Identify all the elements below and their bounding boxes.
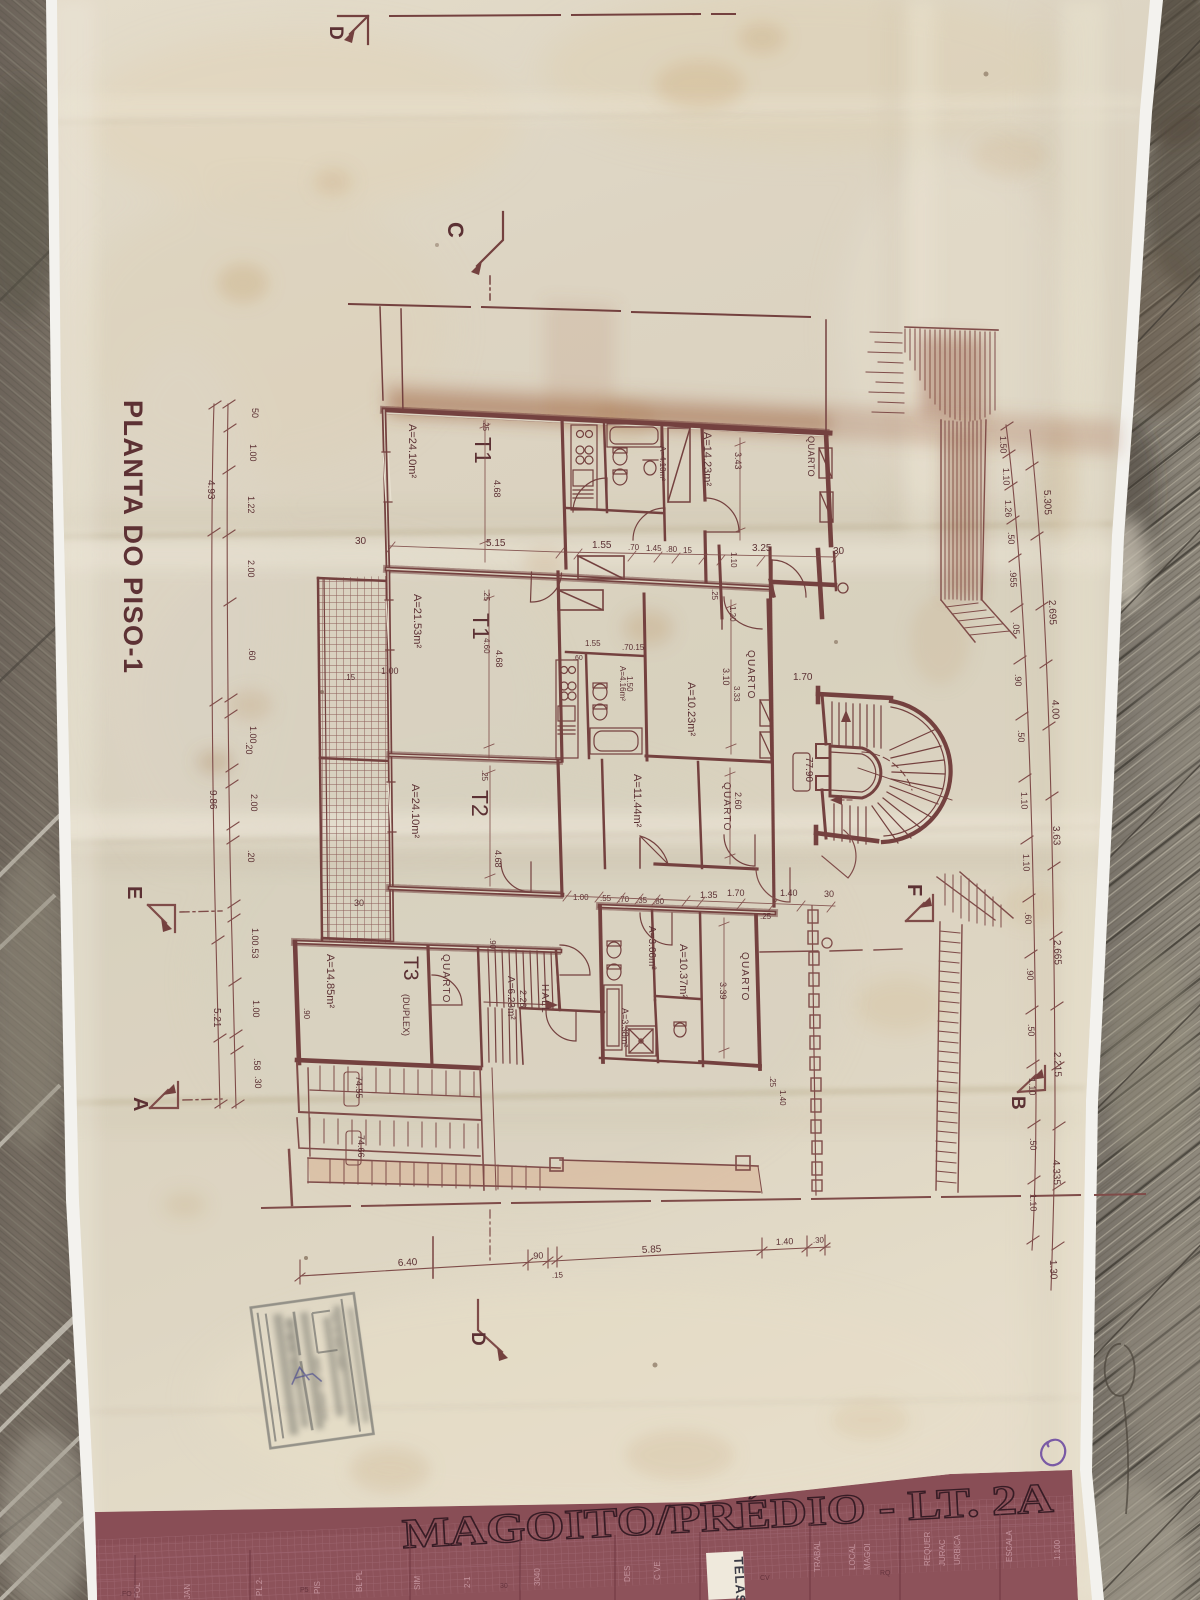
svg-text:C VE: C VE <box>653 1561 662 1580</box>
svg-text:.70.15: .70.15 <box>622 643 645 652</box>
svg-text:URBICA: URBICA <box>953 1534 962 1565</box>
svg-text:4.68: 4.68 <box>493 850 503 868</box>
svg-text:4.68: 4.68 <box>494 650 504 668</box>
svg-text:PIS: PIS <box>313 1581 322 1594</box>
svg-text:A=21.53m²: A=21.53m² <box>411 594 423 648</box>
svg-text:A=14.23m²: A=14.23m² <box>701 432 713 486</box>
svg-text:.90: .90 <box>1013 674 1023 687</box>
svg-text:A=10.37m²: A=10.37m² <box>677 944 689 998</box>
svg-text:1.55: 1.55 <box>585 639 601 648</box>
svg-text:A=3.66m²: A=3.66m² <box>646 926 657 970</box>
svg-text:T1: T1 <box>470 437 496 464</box>
svg-text:2.26: 2.26 <box>518 990 528 1008</box>
svg-text:4.93: 4.93 <box>205 480 216 500</box>
svg-text:A=24.10m²: A=24.10m² <box>409 784 421 838</box>
svg-text:1.10: 1.10 <box>1028 1194 1039 1212</box>
svg-text:3.25: 3.25 <box>752 543 772 554</box>
svg-text:1.26: 1.26 <box>1003 500 1014 518</box>
svg-text:30: 30 <box>355 536 367 547</box>
svg-text:4.60: 4.60 <box>482 638 491 654</box>
svg-text:DES: DES <box>623 1566 632 1582</box>
svg-text:.FO: .FO <box>120 1591 132 1598</box>
svg-text:4.00: 4.00 <box>1049 700 1061 720</box>
svg-text:.58: .58 <box>252 1058 262 1071</box>
svg-text:3.63: 3.63 <box>1050 826 1062 846</box>
svg-text:BL PL: BL PL <box>355 1570 364 1592</box>
svg-text:1.00: 1.00 <box>250 928 260 946</box>
svg-text:1.10: 1.10 <box>729 552 738 568</box>
svg-text:.50: .50 <box>1016 730 1026 743</box>
svg-text:5.305: 5.305 <box>1041 490 1053 516</box>
svg-text:SIM: SIM <box>413 1575 422 1590</box>
svg-text:1.50: 1.50 <box>625 676 634 692</box>
svg-text:9.86: 9.86 <box>207 790 218 810</box>
svg-text:.55: .55 <box>600 894 612 903</box>
svg-text:1.70: 1.70 <box>727 888 745 898</box>
svg-text:1.00: 1.00 <box>381 666 399 676</box>
svg-text:1.00: 1.00 <box>251 1000 261 1018</box>
svg-text:4.335: 4.335 <box>1050 1160 1062 1186</box>
svg-text:.90: .90 <box>1025 968 1035 981</box>
svg-text:3.43: 3.43 <box>733 452 743 470</box>
svg-text:1.00: 1.00 <box>248 444 258 462</box>
svg-text:.20: .20 <box>246 850 256 863</box>
svg-text:1.20: 1.20 <box>728 606 737 622</box>
svg-text:5.15: 5.15 <box>486 538 506 549</box>
svg-text:JAN: JAN <box>183 1584 192 1599</box>
svg-text:.53: .53 <box>250 946 260 959</box>
svg-text:5.85: 5.85 <box>642 1244 662 1256</box>
svg-text:A=4.10m²: A=4.10m² <box>658 446 667 481</box>
svg-text:15: 15 <box>683 546 692 555</box>
svg-text:B: B <box>1007 1096 1028 1110</box>
svg-text:A=11.44m²: A=11.44m² <box>631 774 643 828</box>
svg-text:.60: .60 <box>1023 912 1033 925</box>
svg-text:1.10: 1.10 <box>1001 468 1012 486</box>
svg-text:2-1: 2-1 <box>463 1576 472 1588</box>
svg-text:2.665: 2.665 <box>1051 940 1063 966</box>
svg-text:.90: .90 <box>531 1250 544 1261</box>
svg-text:1.10: 1.10 <box>1027 1078 1038 1096</box>
svg-text:E: E <box>123 886 145 899</box>
svg-text:A=10.23m²: A=10.23m² <box>685 682 697 736</box>
svg-text:A=3.38m²: A=3.38m² <box>620 1008 630 1047</box>
svg-text:.50: .50 <box>1006 532 1016 545</box>
svg-text:D: D <box>467 1332 488 1346</box>
svg-text:1.50: 1.50 <box>998 436 1009 454</box>
svg-text:1.70: 1.70 <box>793 672 813 683</box>
svg-text:REQUER: REQUER <box>923 1532 932 1566</box>
svg-text:.25: .25 <box>760 912 772 921</box>
svg-text:QUARTO: QUARTO <box>806 436 816 477</box>
svg-text:JURAC: JURAC <box>938 1539 947 1566</box>
svg-text:A: A <box>129 1097 151 1111</box>
svg-text:30: 30 <box>833 546 845 557</box>
svg-text:.90: .90 <box>302 1008 311 1020</box>
svg-text:1.10: 1.10 <box>1021 854 1032 872</box>
svg-text:HALL: HALL <box>539 984 550 1014</box>
svg-text:A=6.23m²: A=6.23m² <box>505 976 516 1020</box>
svg-text:F: F <box>903 884 925 896</box>
svg-text:ESCALA: ESCALA <box>1005 1530 1014 1562</box>
svg-text:D: D <box>325 26 346 40</box>
svg-text:.50: .50 <box>1026 1024 1036 1037</box>
svg-text:RQ: RQ <box>880 1570 891 1577</box>
svg-text:.80: .80 <box>666 545 678 554</box>
svg-text:P5: P5 <box>300 1587 309 1594</box>
svg-text:2.60: 2.60 <box>733 792 743 810</box>
svg-text:.955: .955 <box>1008 570 1019 588</box>
svg-text:.05: .05 <box>1011 622 1021 635</box>
svg-text:QUARTO: QUARTO <box>745 650 756 700</box>
svg-text:6.40: 6.40 <box>398 1257 418 1269</box>
svg-text:2.00: 2.00 <box>246 560 256 578</box>
svg-text:3040: 3040 <box>533 1568 542 1586</box>
svg-text:T3: T3 <box>399 956 422 981</box>
svg-text:1.35: 1.35 <box>700 890 718 900</box>
svg-text:A=14.85m²: A=14.85m² <box>324 954 336 1008</box>
svg-text:74.55: 74.55 <box>354 1076 364 1099</box>
svg-text:.30: .30 <box>813 1235 825 1245</box>
svg-text:74.66: 74.66 <box>356 1135 366 1158</box>
svg-text:2.695: 2.695 <box>1046 600 1058 626</box>
svg-text:TRABAL: TRABAL <box>813 1540 822 1572</box>
svg-text:30: 30 <box>824 889 834 899</box>
svg-text:FOL: FOL <box>133 1582 142 1598</box>
svg-text:5.21: 5.21 <box>211 1008 222 1028</box>
svg-text:.15: .15 <box>552 1270 564 1280</box>
svg-text:.25: .25 <box>768 1076 777 1088</box>
svg-text:.70: .70 <box>628 543 640 552</box>
svg-text:.60: .60 <box>573 655 583 662</box>
svg-text:2.00: 2.00 <box>249 794 259 812</box>
svg-text:1.00: 1.00 <box>248 726 258 744</box>
svg-text:1.22: 1.22 <box>246 496 256 514</box>
svg-text:3.33: 3.33 <box>732 686 741 702</box>
svg-text:.90: .90 <box>488 938 497 950</box>
svg-text:(DUPLEX): (DUPLEX) <box>401 994 411 1036</box>
svg-text:.15: .15 <box>344 673 356 682</box>
svg-text:1.00: 1.00 <box>573 893 589 902</box>
svg-text:1.55: 1.55 <box>592 540 612 551</box>
svg-text:MAGOI: MAGOI <box>863 1543 872 1570</box>
svg-text:CV: CV <box>760 1575 770 1582</box>
svg-text:77.90: 77.90 <box>803 757 814 782</box>
svg-text:3.39: 3.39 <box>718 982 728 1000</box>
svg-text:1.40: 1.40 <box>780 888 798 898</box>
svg-text:3.10: 3.10 <box>721 668 731 686</box>
svg-text:1.10: 1.10 <box>1019 792 1030 810</box>
svg-text:PLANTA DO PISO-1: PLANTA DO PISO-1 <box>118 400 148 675</box>
svg-text:30: 30 <box>500 1583 508 1590</box>
svg-text:.25: .25 <box>482 590 491 602</box>
svg-text:QUARTO: QUARTO <box>440 954 451 1004</box>
svg-text:50: 50 <box>250 408 260 418</box>
svg-text:2.215: 2.215 <box>1051 1052 1063 1078</box>
svg-text:.20: .20 <box>244 742 254 755</box>
svg-text:1.45: 1.45 <box>646 544 662 553</box>
svg-text:TELAS: TELAS <box>731 1556 748 1600</box>
svg-text:T1: T1 <box>468 613 494 640</box>
svg-text:1.40: 1.40 <box>778 1090 787 1106</box>
svg-text:30: 30 <box>354 898 364 908</box>
svg-text:LOCAL: LOCAL <box>848 1543 857 1570</box>
svg-text:1:100: 1:100 <box>1053 1539 1062 1560</box>
svg-text:.25: .25 <box>480 770 489 782</box>
svg-text:1.30: 1.30 <box>1047 1260 1059 1280</box>
svg-text:.25: .25 <box>710 589 719 601</box>
svg-text:1.40: 1.40 <box>776 1236 794 1247</box>
svg-text:PL 2-: PL 2- <box>255 1577 264 1596</box>
svg-text:.60: .60 <box>247 648 257 661</box>
svg-text:4.68: 4.68 <box>492 480 502 498</box>
svg-text:.30: .30 <box>253 1076 263 1089</box>
svg-text:T2: T2 <box>467 790 493 817</box>
svg-text:A=24.10m²: A=24.10m² <box>406 424 418 478</box>
svg-text:C: C <box>443 222 468 238</box>
svg-text:QUARTO: QUARTO <box>739 952 750 1002</box>
svg-text:.50: .50 <box>1028 1138 1038 1151</box>
